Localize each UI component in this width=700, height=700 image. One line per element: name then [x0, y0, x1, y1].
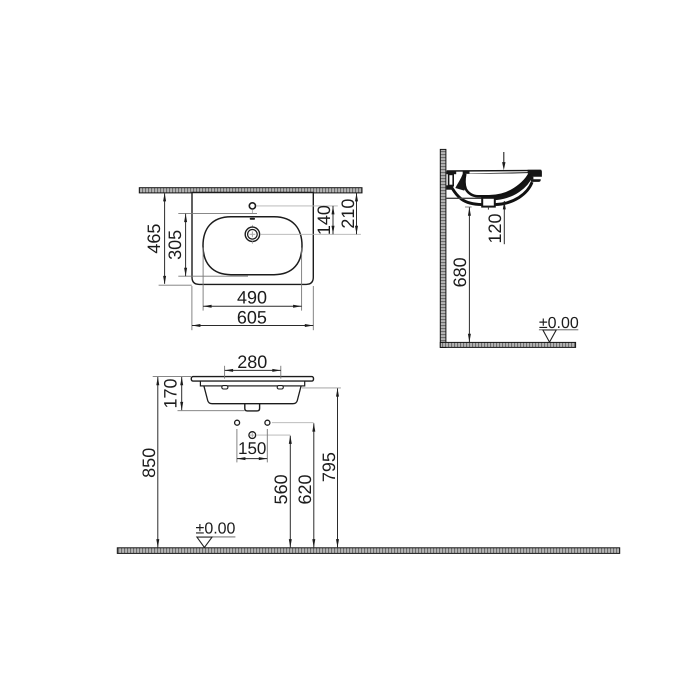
svg-text:150: 150 [238, 439, 266, 458]
svg-text:±0.00: ±0.00 [196, 521, 236, 538]
svg-text:605: 605 [237, 308, 267, 328]
svg-text:210: 210 [338, 199, 358, 229]
svg-text:490: 490 [237, 287, 267, 307]
svg-text:120: 120 [485, 213, 505, 243]
svg-text:305: 305 [165, 230, 185, 260]
svg-text:680: 680 [450, 257, 470, 287]
svg-text:850: 850 [139, 448, 159, 478]
svg-text:170: 170 [161, 378, 181, 408]
svg-text:795: 795 [319, 452, 339, 482]
svg-text:560: 560 [271, 474, 291, 504]
svg-text:465: 465 [144, 224, 164, 254]
svg-text:280: 280 [237, 352, 267, 372]
svg-text:±0.00: ±0.00 [539, 315, 579, 332]
svg-text:620: 620 [295, 474, 315, 504]
svg-text:140: 140 [314, 205, 334, 235]
